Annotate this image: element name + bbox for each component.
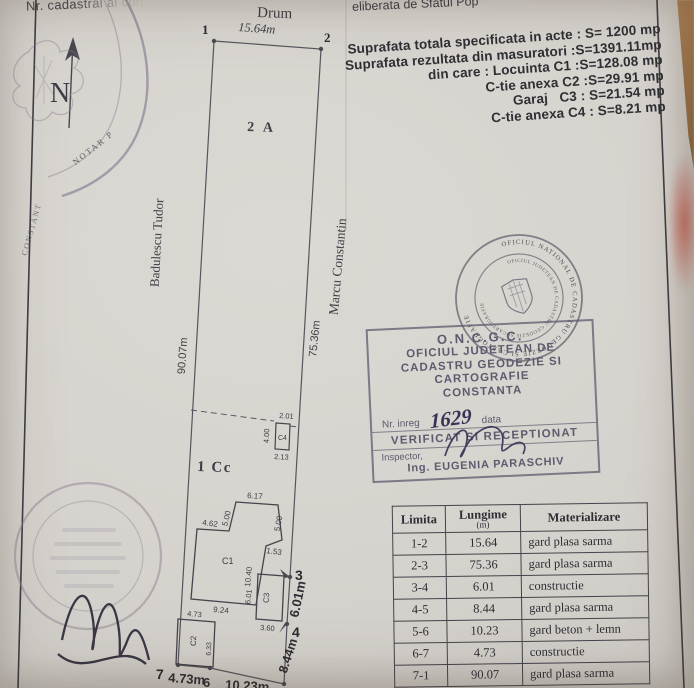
notary-stamp-text-a: NOTAR P: [71, 128, 116, 166]
limit-cell: 2-3: [393, 555, 446, 578]
neighbor-left-name: Badulescu Tudor: [147, 198, 167, 288]
length-cell: 75.36: [446, 553, 521, 576]
length-cell: 10.23: [447, 619, 522, 642]
dim-right-boundary: 75.36m: [307, 320, 323, 358]
length-cell: 4.73: [447, 641, 522, 664]
point-4: 4: [292, 624, 300, 640]
material-cell: gard plasa sarma: [521, 530, 648, 554]
col-header-limita: Limita: [392, 506, 445, 534]
dim-c1-bottom: 9.24: [213, 605, 230, 615]
material-cell: gard beton + lemn: [522, 618, 649, 642]
limit-cell: 1-2: [393, 533, 446, 556]
dim-c1-right-side: 10.40: [243, 566, 254, 587]
parcel-label-1cc: 1 Cc: [197, 459, 232, 476]
label-c4: C4: [278, 435, 287, 442]
material-cell: gard plasa sarma: [521, 552, 648, 576]
table-row: 7-190.07gard plasa sarma: [394, 662, 649, 688]
dim-c4-top: 2.01: [279, 411, 294, 421]
label-c1: C1: [222, 556, 234, 566]
material-cell: constructie: [522, 640, 649, 664]
limits-table-header-row: Limita Lungime (m) Materializare: [392, 503, 647, 534]
dim-c4-side: 4.00: [262, 428, 272, 443]
road-label: Drum: [257, 5, 293, 22]
length-cell: 6.01: [446, 575, 521, 598]
limit-cell: 7-1: [394, 665, 447, 688]
neighbor-right-name: Marcu Constantin: [326, 217, 349, 315]
dim-edge-5-6: 10.23m: [225, 677, 270, 688]
dim-c4-bottom: 2.13: [274, 452, 289, 462]
dim-c1-step: 4.62: [202, 518, 219, 529]
admin-stamp-text-blur: [52, 530, 124, 586]
dim-c1-notch: 1.53: [266, 546, 283, 557]
length-cell: 90.07: [447, 663, 522, 686]
cadastral-plan-sheet: N Drum 15.64m 1 2 2 A Badulescu Tudor Ma…: [0, 0, 694, 688]
dim-edge-6-7: 4.73m: [168, 670, 206, 688]
dim-edge-4-5: 8.44m: [276, 637, 300, 675]
limit-cell: 3-4: [393, 577, 446, 600]
parcel-label-2a: 2 A: [247, 120, 276, 136]
dim-c1-right-upper: 5.00: [273, 515, 285, 532]
label-c2: C2: [189, 635, 198, 646]
inspector-signature: [433, 412, 543, 472]
dim-left-boundary: 90.07m: [176, 337, 191, 374]
material-cell: constructie: [521, 574, 648, 598]
mayor-signature: [58, 596, 149, 664]
notary-stamp-outer-arc: [62, 0, 147, 196]
finger-smudge: [668, 150, 694, 295]
col-header-lungime: Lungime (m): [445, 505, 520, 533]
point-6: 6: [203, 675, 210, 688]
col-header-materializare: Materializare: [520, 503, 647, 532]
point-1: 1: [202, 22, 209, 37]
reg-label: Nr. inreg: [382, 418, 420, 431]
dim-c3-side: 6.01: [243, 589, 253, 604]
dim-c2-top: 4.73: [187, 609, 202, 619]
limits-table: Limita Lungime (m) Materializare 1-215.6…: [392, 502, 651, 688]
point-7: 7: [156, 666, 164, 682]
dim-c3-bottom: 3.60: [260, 623, 275, 633]
dim-c1-top: 6.17: [247, 491, 264, 501]
round-stamp-shield-icon: [501, 276, 537, 317]
north-label: N: [50, 78, 70, 109]
limit-cell: 5-6: [394, 621, 447, 644]
limit-cell: 4-5: [394, 599, 447, 622]
dim-c2-side: 6.33: [206, 642, 214, 656]
notary-stamp-text-b: CONSTANT: [20, 202, 44, 256]
length-cell: 15.64: [446, 531, 521, 554]
label-c3: C3: [262, 592, 272, 603]
material-cell: gard plasa sarma: [522, 662, 649, 686]
admin-round-stamp: [15, 483, 161, 664]
material-cell: gard plasa sarma: [522, 596, 649, 620]
limit-cell: 6-7: [394, 643, 447, 666]
point-2: 2: [324, 30, 331, 45]
dim-top-edge: 15.64m: [238, 20, 276, 37]
length-cell: 8.44: [447, 597, 522, 620]
